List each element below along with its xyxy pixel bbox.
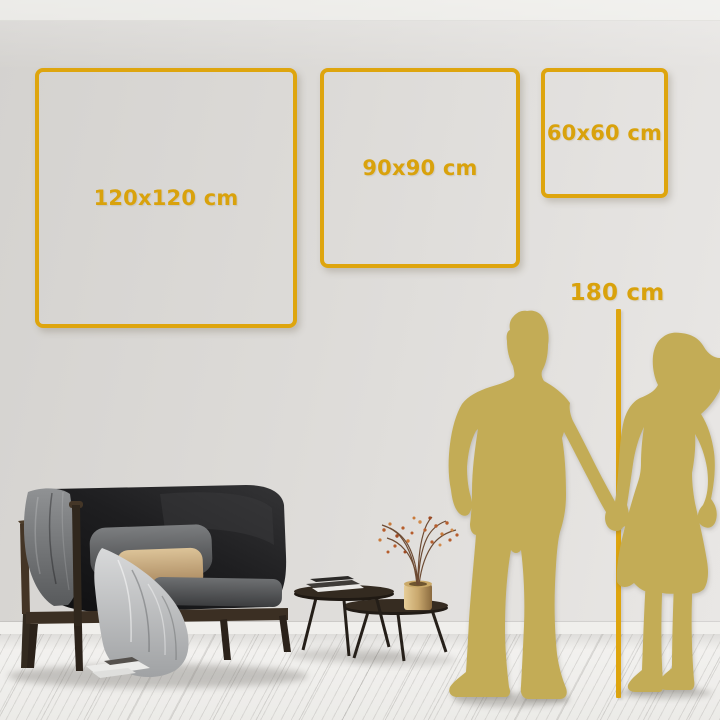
size-frame-60x60: 60x60 cm <box>541 68 668 198</box>
size-label-90x90: 90x90 cm <box>362 156 477 180</box>
size-label-120x120: 120x120 cm <box>94 186 239 210</box>
ceiling-strip <box>0 0 720 21</box>
size-frame-120x120: 120x120 cm <box>35 68 297 328</box>
height-ruler-label: 180 cm <box>556 280 678 306</box>
size-label-60x60: 60x60 cm <box>547 121 662 145</box>
size-guide-poster: 120x120 cm 90x90 cm 60x60 cm 180 cm <box>0 0 720 720</box>
wood-floor <box>0 634 720 720</box>
baseboard <box>0 622 720 634</box>
height-ruler-line <box>616 309 621 698</box>
size-frame-90x90: 90x90 cm <box>320 68 520 268</box>
